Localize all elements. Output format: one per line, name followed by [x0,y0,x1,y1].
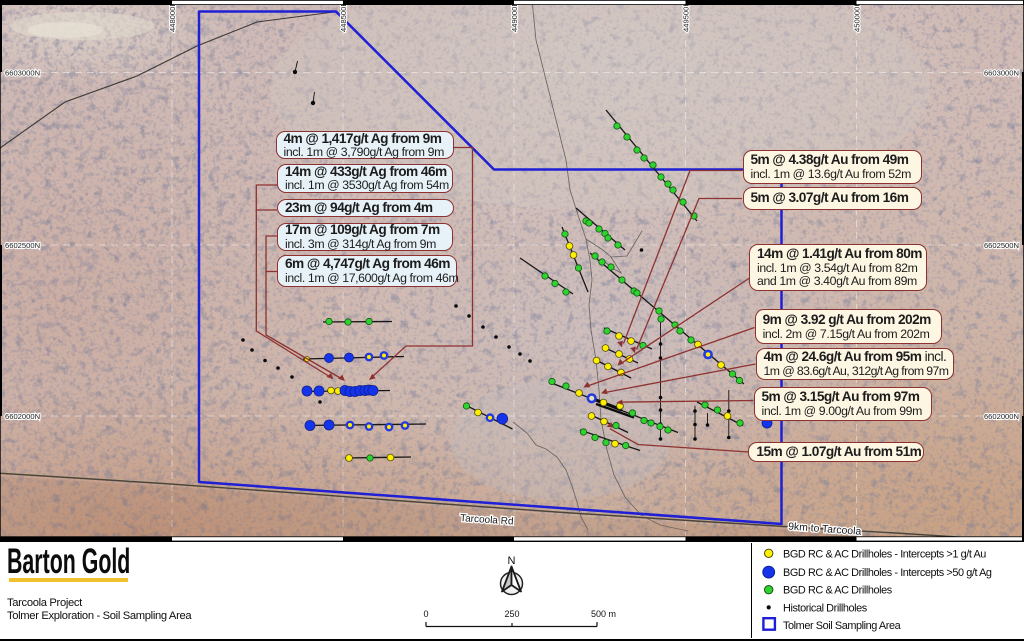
svg-text:Tolmer Soil Sampling Area: Tolmer Soil Sampling Area [783,619,902,631]
svg-text:6602500N: 6602500N [5,241,40,250]
svg-text:6603000N: 6603000N [5,69,40,78]
svg-text:Historical Drillholes: Historical Drillholes [783,602,868,614]
svg-text:250: 250 [504,609,519,619]
svg-text:BGD RC & AC Drillholes - Inter: BGD RC & AC Drillholes - Intercepts >1 g… [783,548,986,560]
svg-text:450000E: 450000E [853,2,862,32]
svg-text:6602000N: 6602000N [5,412,40,421]
svg-text:6602000N: 6602000N [984,412,1019,421]
svg-text:6602500N: 6602500N [984,241,1019,250]
svg-text:449000E: 449000E [510,2,519,32]
svg-text:448500E: 448500E [339,2,348,32]
svg-text:500 m: 500 m [591,609,616,619]
svg-text:N: N [508,555,516,567]
svg-text:0: 0 [423,609,428,619]
svg-text:BGD RC & AC Drillholes: BGD RC & AC Drillholes [783,584,893,596]
svg-text:449500E: 449500E [682,2,691,32]
svg-text:448000E: 448000E [168,2,177,32]
svg-text:BGD RC & AC Drillholes - Inter: BGD RC & AC Drillholes - Intercepts >50 … [783,567,992,579]
svg-text:6603000N: 6603000N [984,69,1019,78]
